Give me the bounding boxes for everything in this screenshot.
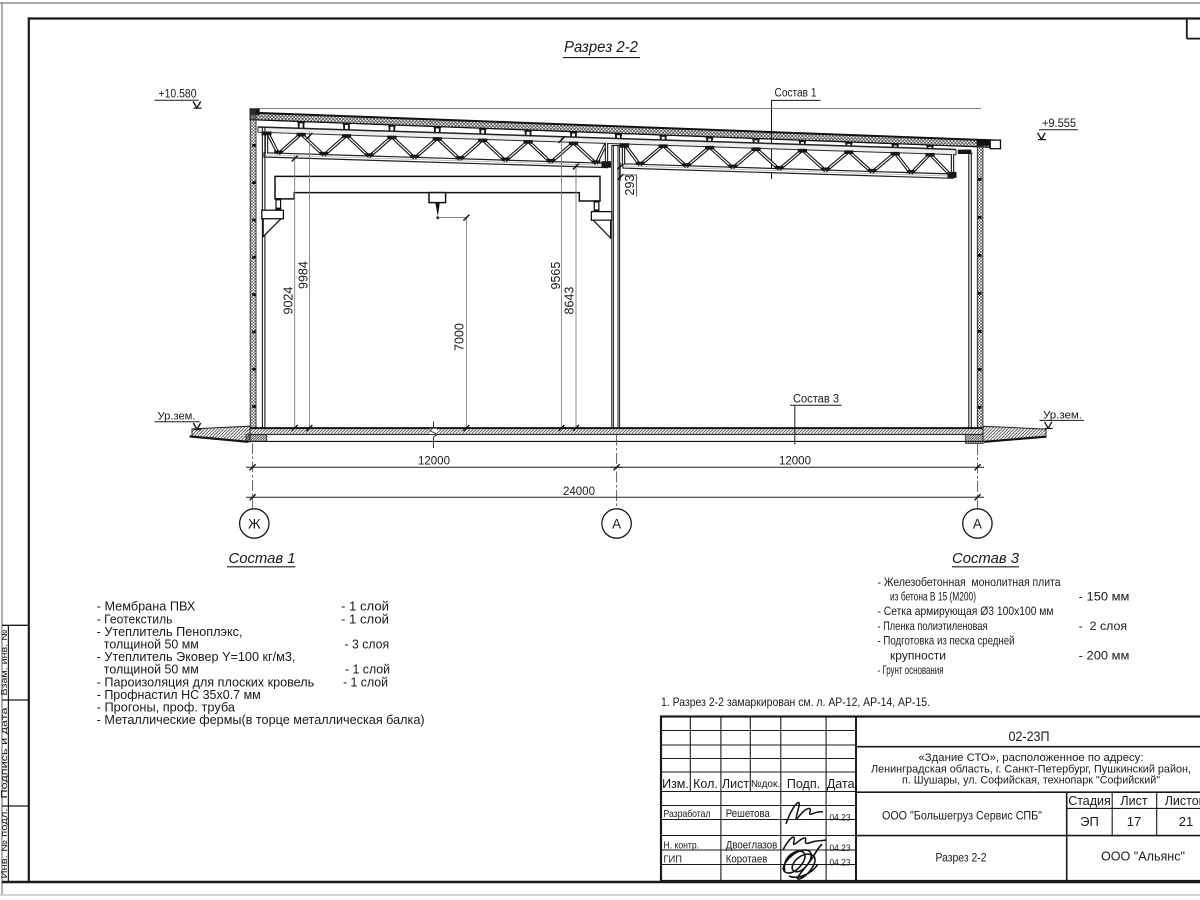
- svg-text:17: 17: [1127, 814, 1141, 829]
- svg-text:- 200 мм: - 200 мм: [1079, 648, 1130, 662]
- svg-text:А: А: [973, 517, 982, 532]
- svg-text:- 150 мм: - 150 мм: [1079, 590, 1130, 604]
- svg-text:- Сетка армирующая Ø3 100х100: - Сетка армирующая Ø3 100х100 мм: [878, 604, 1054, 618]
- svg-text:1. Разрез 2-2 замаркирован см.: 1. Разрез 2-2 замаркирован см. л. АР-12,…: [661, 695, 930, 709]
- svg-text:крупности: крупности: [890, 648, 946, 662]
- svg-text:21: 21: [1179, 814, 1193, 829]
- svg-text:12000: 12000: [418, 456, 450, 468]
- svg-text:7000: 7000: [452, 323, 466, 351]
- svg-text:9024: 9024: [282, 287, 296, 315]
- svg-text:293: 293: [623, 175, 637, 196]
- svg-text:Решетова: Решетова: [726, 808, 771, 820]
- svg-text:Изм.: Изм.: [662, 777, 689, 791]
- svg-text:Листов: Листов: [1165, 794, 1200, 808]
- svg-text:- Железобетонная монолитная п: - Железобетонная монолитная плита: [878, 575, 1061, 589]
- svg-text:Ур.зем.: Ур.зем.: [158, 411, 196, 423]
- svg-text:- 2 слоя: - 2 слоя: [1079, 619, 1127, 633]
- svg-text:Стадия: Стадия: [1068, 794, 1111, 808]
- svg-text:ЭП: ЭП: [1080, 814, 1099, 829]
- svg-text:Состав 1: Состав 1: [229, 550, 296, 567]
- svg-text:9984: 9984: [296, 261, 310, 289]
- svg-text:Подпись и дата: Подпись и дата: [0, 707, 9, 799]
- svg-text:Лист: Лист: [722, 777, 749, 791]
- svg-text:12000: 12000: [779, 456, 811, 468]
- svg-text:Разрез 2-2: Разрез 2-2: [936, 851, 987, 865]
- svg-text:Коротаев: Коротаев: [726, 854, 768, 866]
- svg-text:п. Шушары, ул. Софийская, техн: п. Шушары, ул. Софийская, технопарк "Соф…: [902, 775, 1160, 787]
- svg-text:ГИП: ГИП: [664, 854, 683, 866]
- svg-text:04.23: 04.23: [830, 813, 851, 824]
- svg-text:А: А: [612, 517, 621, 532]
- svg-text:из бетона В 15 (М200): из бетона В 15 (М200): [890, 590, 976, 604]
- svg-text:+10.580: +10.580: [159, 89, 197, 101]
- svg-text:02-23П: 02-23П: [1009, 728, 1050, 744]
- svg-text:04.23: 04.23: [830, 843, 851, 854]
- svg-text:Н. контр.: Н. контр.: [664, 840, 700, 852]
- svg-text:- Грунт основания: - Грунт основания: [878, 663, 944, 677]
- svg-text:24000: 24000: [563, 486, 595, 498]
- svg-text:- Подготовка из песка средней: - Подготовка из песка средней: [878, 634, 1015, 648]
- svg-text:- Металлические фермы(в торце: - Металлические фермы(в торце металличес…: [97, 713, 425, 727]
- svg-text:ООО "Альянс": ООО "Альянс": [1101, 850, 1185, 864]
- svg-text:№док.: №док.: [751, 779, 780, 790]
- svg-text:Дата: Дата: [827, 777, 855, 791]
- svg-text:Состав 1: Состав 1: [775, 88, 817, 100]
- svg-text:9565: 9565: [549, 262, 563, 290]
- svg-text:Ур.зем.: Ур.зем.: [1043, 410, 1082, 422]
- svg-text:Состав 3: Состав 3: [952, 550, 1020, 567]
- svg-text:Кол.: Кол.: [693, 777, 718, 791]
- svg-text:Разрез 2-2: Разрез 2-2: [564, 39, 638, 56]
- svg-text:- Пленка полиэтиленовая: - Пленка полиэтиленовая: [878, 619, 988, 633]
- svg-text:ООО "Большегруз Сервис СПБ": ООО "Большегруз Сервис СПБ": [882, 811, 1042, 823]
- svg-text:Инв. № подл.: Инв. № подл.: [0, 809, 9, 879]
- svg-text:- 1 слой: - 1 слой: [343, 675, 388, 689]
- svg-text:- 3 слоя: - 3 слоя: [345, 638, 390, 652]
- svg-text:Двоеглазов: Двоеглазов: [726, 840, 778, 852]
- svg-text:Состав 3: Состав 3: [793, 394, 839, 406]
- svg-text:Ж: Ж: [248, 517, 261, 532]
- svg-text:- 1 слой: - 1 слой: [341, 612, 389, 626]
- svg-text:+9.555: +9.555: [1042, 118, 1076, 130]
- svg-text:Лист: Лист: [1120, 794, 1147, 808]
- svg-text:04.23: 04.23: [830, 858, 851, 869]
- svg-text:Разработал: Разработал: [664, 808, 711, 820]
- svg-text:Взам. инв. №: Взам. инв. №: [0, 629, 9, 696]
- svg-text:Подп.: Подп.: [787, 777, 820, 791]
- svg-text:8643: 8643: [563, 287, 577, 315]
- svg-text:«Здание СТО», расположенное по: «Здание СТО», расположенное по адресу:: [919, 752, 1144, 764]
